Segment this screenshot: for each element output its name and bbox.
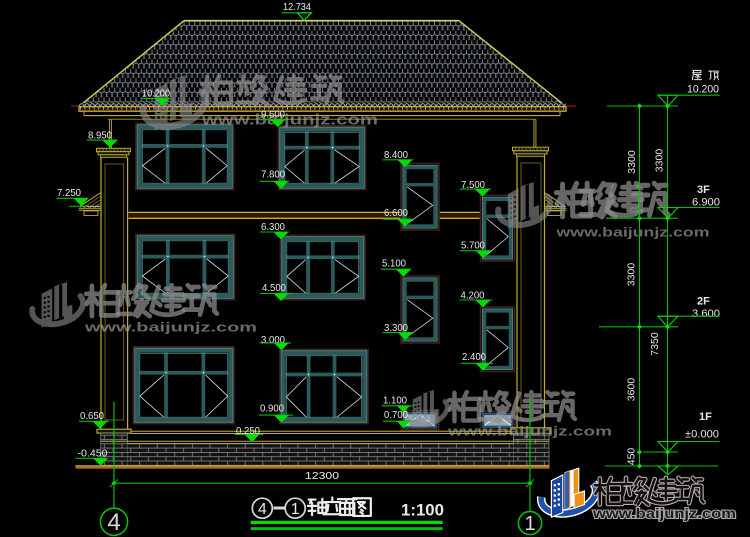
- svg-text:1: 1: [291, 501, 300, 518]
- svg-text:4: 4: [107, 509, 120, 536]
- svg-text:2F: 2F: [697, 296, 710, 308]
- svg-text:7350: 7350: [649, 332, 661, 356]
- svg-text:0.650: 0.650: [80, 411, 104, 422]
- svg-text:3300: 3300: [654, 149, 666, 173]
- svg-text:±0.000: ±0.000: [685, 429, 719, 441]
- svg-text:1: 1: [524, 513, 535, 535]
- svg-text:5.100: 5.100: [382, 258, 406, 269]
- svg-text:12.734: 12.734: [283, 2, 311, 13]
- svg-text:3300: 3300: [626, 150, 638, 174]
- svg-text:3600: 3600: [626, 378, 638, 402]
- svg-text:0.900: 0.900: [260, 404, 284, 415]
- svg-text:www.baijunjz.com: www.baijunjz.com: [555, 225, 709, 240]
- svg-text:7.250: 7.250: [57, 188, 81, 199]
- svg-text:3300: 3300: [626, 263, 638, 287]
- svg-text:9.600: 9.600: [261, 109, 285, 120]
- svg-text:2.400: 2.400: [462, 352, 486, 363]
- svg-text:1.100: 1.100: [383, 396, 407, 407]
- svg-text:4: 4: [258, 501, 267, 518]
- svg-text:3F: 3F: [697, 184, 710, 196]
- svg-text:0.700: 0.700: [384, 410, 408, 421]
- svg-text:12300: 12300: [305, 470, 339, 482]
- svg-text:3.600: 3.600: [692, 308, 720, 320]
- svg-text:www.baijunjz.com: www.baijunjz.com: [447, 424, 612, 439]
- svg-text:www.baijunjz.com: www.baijunjz.com: [201, 113, 378, 129]
- svg-text:5.700: 5.700: [461, 240, 485, 251]
- svg-text:450: 450: [626, 448, 638, 466]
- svg-text:1:100: 1:100: [401, 501, 444, 520]
- svg-text:10.200: 10.200: [687, 84, 719, 96]
- svg-text:7.800: 7.800: [261, 170, 285, 181]
- svg-text:6.600: 6.600: [384, 208, 408, 219]
- svg-text:1F: 1F: [699, 411, 712, 423]
- svg-text:4.500: 4.500: [262, 283, 286, 294]
- svg-text:www.baijunjz.com: www.baijunjz.com: [592, 506, 736, 521]
- svg-text:www.baijunjz.com: www.baijunjz.com: [83, 320, 257, 335]
- svg-text:6.900: 6.900: [692, 197, 720, 209]
- svg-text:10.200: 10.200: [142, 88, 170, 99]
